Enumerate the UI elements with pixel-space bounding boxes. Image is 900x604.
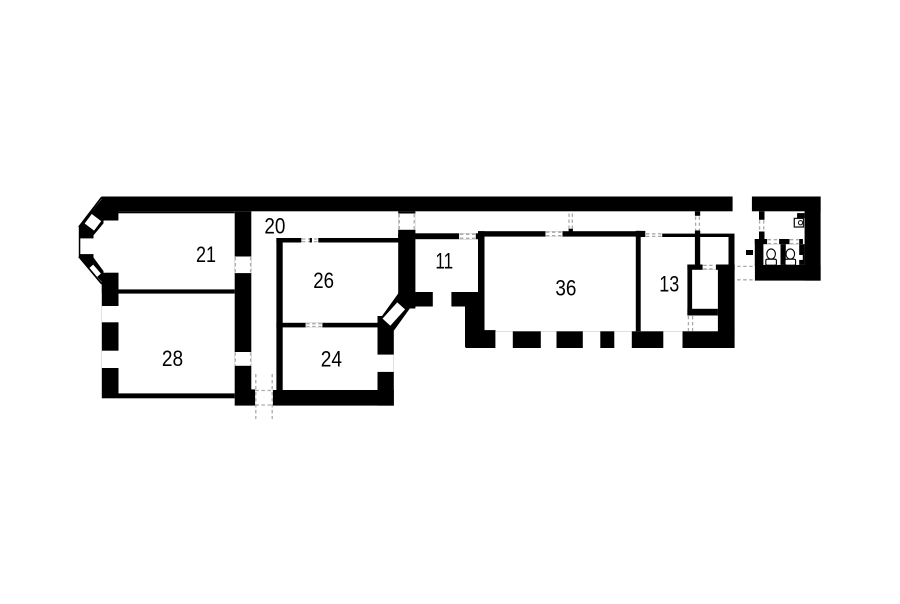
svg-text:20: 20 — [264, 214, 285, 239]
svg-text:11: 11 — [435, 249, 453, 274]
svg-text:26: 26 — [313, 269, 334, 294]
svg-text:24: 24 — [321, 347, 342, 372]
svg-text:21: 21 — [196, 243, 216, 267]
svg-text:13: 13 — [659, 273, 679, 297]
svg-text:28: 28 — [162, 347, 183, 372]
svg-text:36: 36 — [555, 276, 576, 301]
